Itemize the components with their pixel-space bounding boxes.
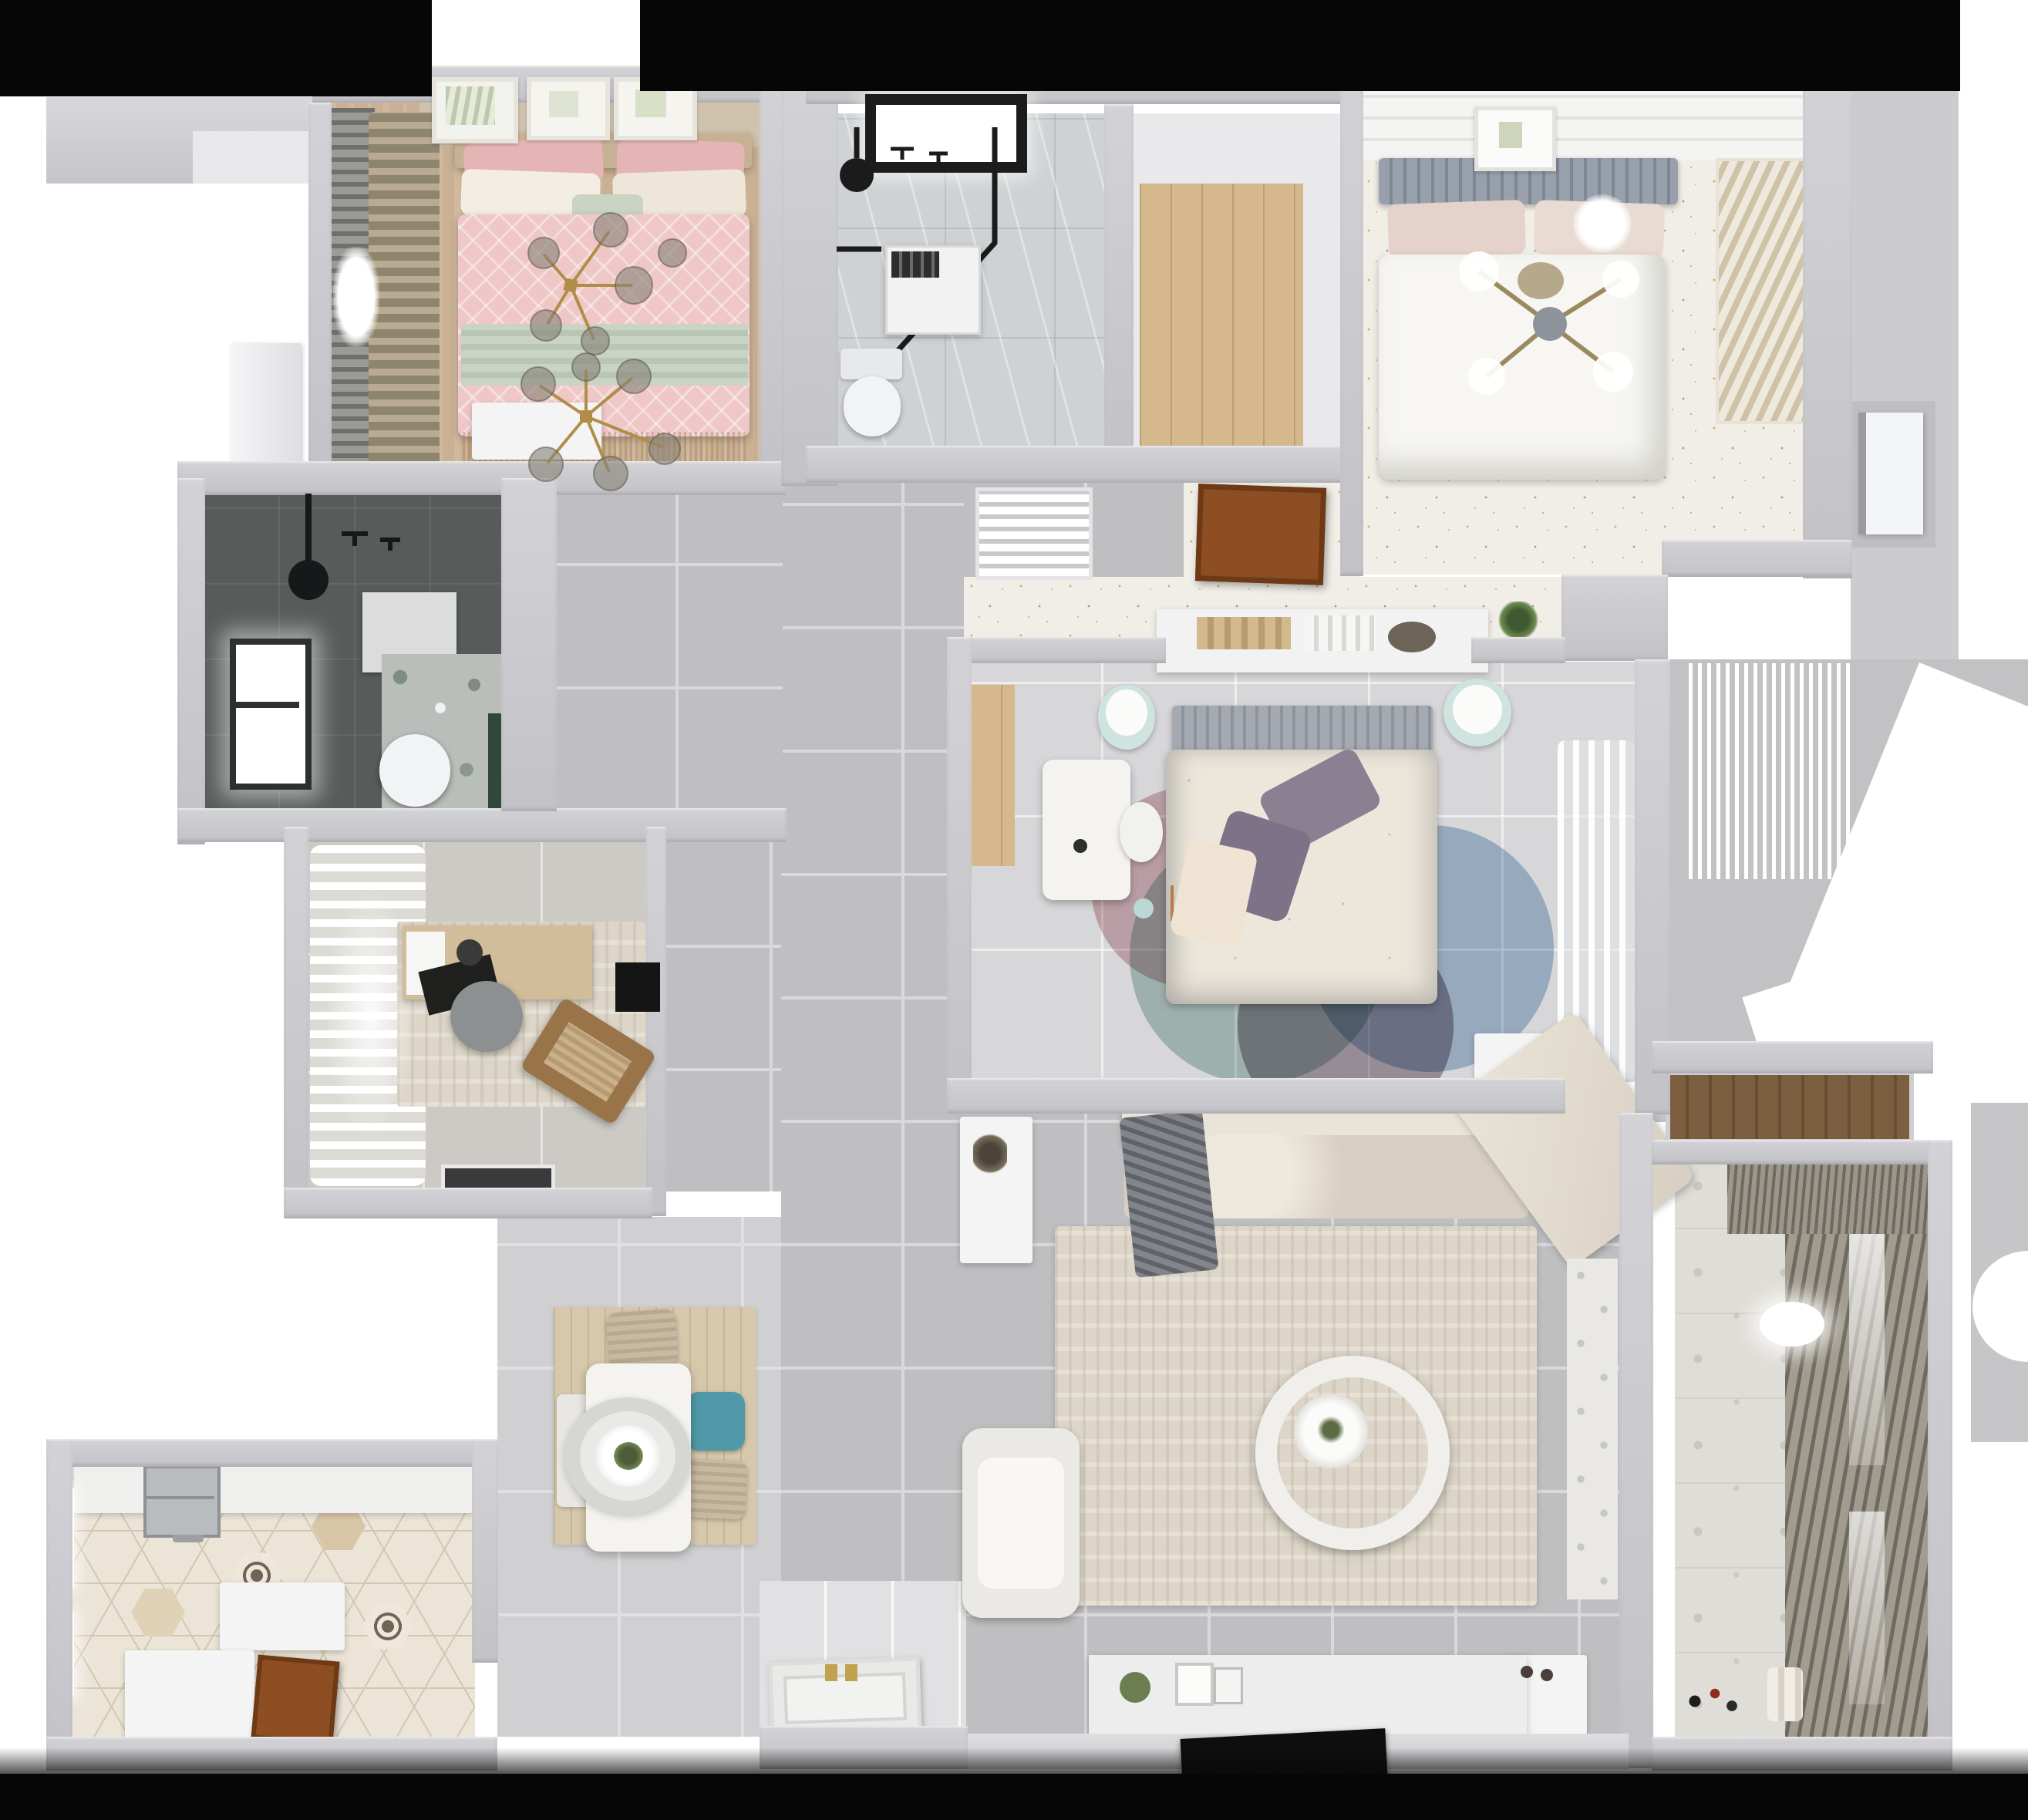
floorplan-render xyxy=(0,0,2028,1820)
wall-whitebed-bottom-seg xyxy=(1662,540,1852,577)
right-blend-hatch xyxy=(1689,663,1851,879)
desk-lamp-dot xyxy=(1073,839,1087,853)
wall-kitchen-top xyxy=(46,1439,497,1467)
toilet-main xyxy=(841,349,902,379)
wall-balcony-top xyxy=(1652,1140,1933,1164)
white-art-print xyxy=(1499,122,1522,148)
shelf-bowl xyxy=(1388,622,1436,652)
shelf-books-tan xyxy=(1197,617,1291,649)
art-frame-3-print xyxy=(635,89,666,117)
balcony-rolls xyxy=(1767,1667,1803,1721)
wall-pink-left xyxy=(308,103,332,469)
chair-beige-bottom xyxy=(683,1458,748,1520)
toilet-main-bowl xyxy=(844,376,901,436)
wall-bath-closet-divider xyxy=(1104,104,1134,451)
wall-bath-bottom xyxy=(806,446,1357,483)
wall-master-left xyxy=(947,637,972,1114)
wall-corridor-right xyxy=(1561,575,1668,661)
coffee-table-decor xyxy=(1317,1416,1345,1444)
right-exterior-wall xyxy=(1851,89,1966,675)
armchair-seat xyxy=(978,1458,1064,1589)
black-band-top xyxy=(640,0,1960,91)
wall-whitebed-right xyxy=(1803,66,1852,578)
study-chair xyxy=(450,981,523,1052)
desk-mug xyxy=(456,939,483,966)
deco-tile-strip xyxy=(1567,1259,1618,1599)
wall-darkbath-left xyxy=(177,478,205,844)
gold-chandelier xyxy=(470,139,779,501)
pouf-left-top xyxy=(1106,689,1147,736)
ceiling-fan-cross xyxy=(1450,231,1650,416)
closet-wood xyxy=(1140,184,1303,446)
hall-zone-b xyxy=(555,494,783,810)
art-frame-1-print xyxy=(446,86,495,125)
pink-window-glow xyxy=(333,247,379,347)
right-exterior-white xyxy=(1959,89,2028,663)
wall-master-bottom xyxy=(947,1078,1565,1114)
shelf-books-white xyxy=(1305,615,1376,651)
entry-door-handles xyxy=(825,1664,837,1681)
console-right-dots xyxy=(1521,1666,1533,1678)
gray-throw xyxy=(1119,1110,1218,1278)
kitchen-door xyxy=(251,1655,339,1747)
black-tablet xyxy=(615,962,660,1012)
console-frames xyxy=(1175,1663,1214,1706)
console-frame2 xyxy=(1214,1667,1243,1704)
hall-wood-door xyxy=(1195,484,1326,585)
kitchen-sink xyxy=(143,1465,221,1538)
wall-balcony-right xyxy=(1928,1140,1952,1768)
wall-kitchen-left xyxy=(46,1439,72,1771)
pink-door-leaf xyxy=(231,343,301,465)
wall-master-top-left xyxy=(948,637,1166,663)
wall-balcony-frame-top xyxy=(1652,1041,1933,1073)
kitchen-sink-divider xyxy=(143,1496,214,1499)
side-table-plant xyxy=(973,1132,1007,1175)
wall-master-top-right xyxy=(1471,637,1565,663)
wall-darkbath-bottom xyxy=(177,808,787,842)
shutter-glow-2 xyxy=(1849,1512,1885,1704)
water-heater-panel xyxy=(891,251,939,278)
wall-darkbath-right xyxy=(501,478,557,811)
hall-spine xyxy=(781,483,966,1737)
wall-mainbath-left xyxy=(781,66,838,486)
balcony-toys xyxy=(1681,1680,1747,1720)
wall-study-left xyxy=(284,827,308,1216)
master-desk-chair xyxy=(1120,802,1163,862)
shutter-top-band xyxy=(1727,1163,1929,1234)
pouf-right-top xyxy=(1453,685,1502,734)
wall-study-right xyxy=(646,827,666,1216)
chair-teal xyxy=(686,1392,745,1451)
shower-set-dark xyxy=(204,494,505,810)
kitchen-faucet xyxy=(173,1535,204,1542)
balcony-ceiling-light xyxy=(1760,1302,1824,1346)
art-frame-2-print xyxy=(549,91,578,117)
black-band-top-left xyxy=(0,0,432,96)
right-white-door-leaf xyxy=(1858,413,1923,534)
chair-beige-top xyxy=(606,1309,679,1369)
wall-study-bottom xyxy=(284,1188,652,1218)
console-green-disc xyxy=(1120,1672,1150,1703)
teal-cup xyxy=(1134,898,1154,918)
shelf-plant xyxy=(1496,602,1541,639)
master-closet-wood xyxy=(970,685,1015,866)
kitchen-wall-cabinet xyxy=(220,1582,345,1650)
master-desk xyxy=(1043,760,1130,900)
tv-console xyxy=(1089,1655,1527,1735)
kitchen-counter-top xyxy=(74,1464,475,1513)
table-plant xyxy=(614,1442,643,1470)
floor-vent-grille xyxy=(975,487,1093,580)
wall-kitchen-right xyxy=(472,1439,498,1663)
shutter-glow-1 xyxy=(1849,1234,1885,1465)
black-band-bottom xyxy=(0,1774,2028,1820)
balcony-cabinet-wood xyxy=(1666,1070,1914,1144)
hall-zone-c xyxy=(649,841,781,1191)
wall-closet-right xyxy=(1340,66,1363,576)
master-headboard xyxy=(1172,706,1433,752)
louver-wardrobe xyxy=(1716,158,1807,424)
wall-living-right xyxy=(1619,1113,1653,1768)
